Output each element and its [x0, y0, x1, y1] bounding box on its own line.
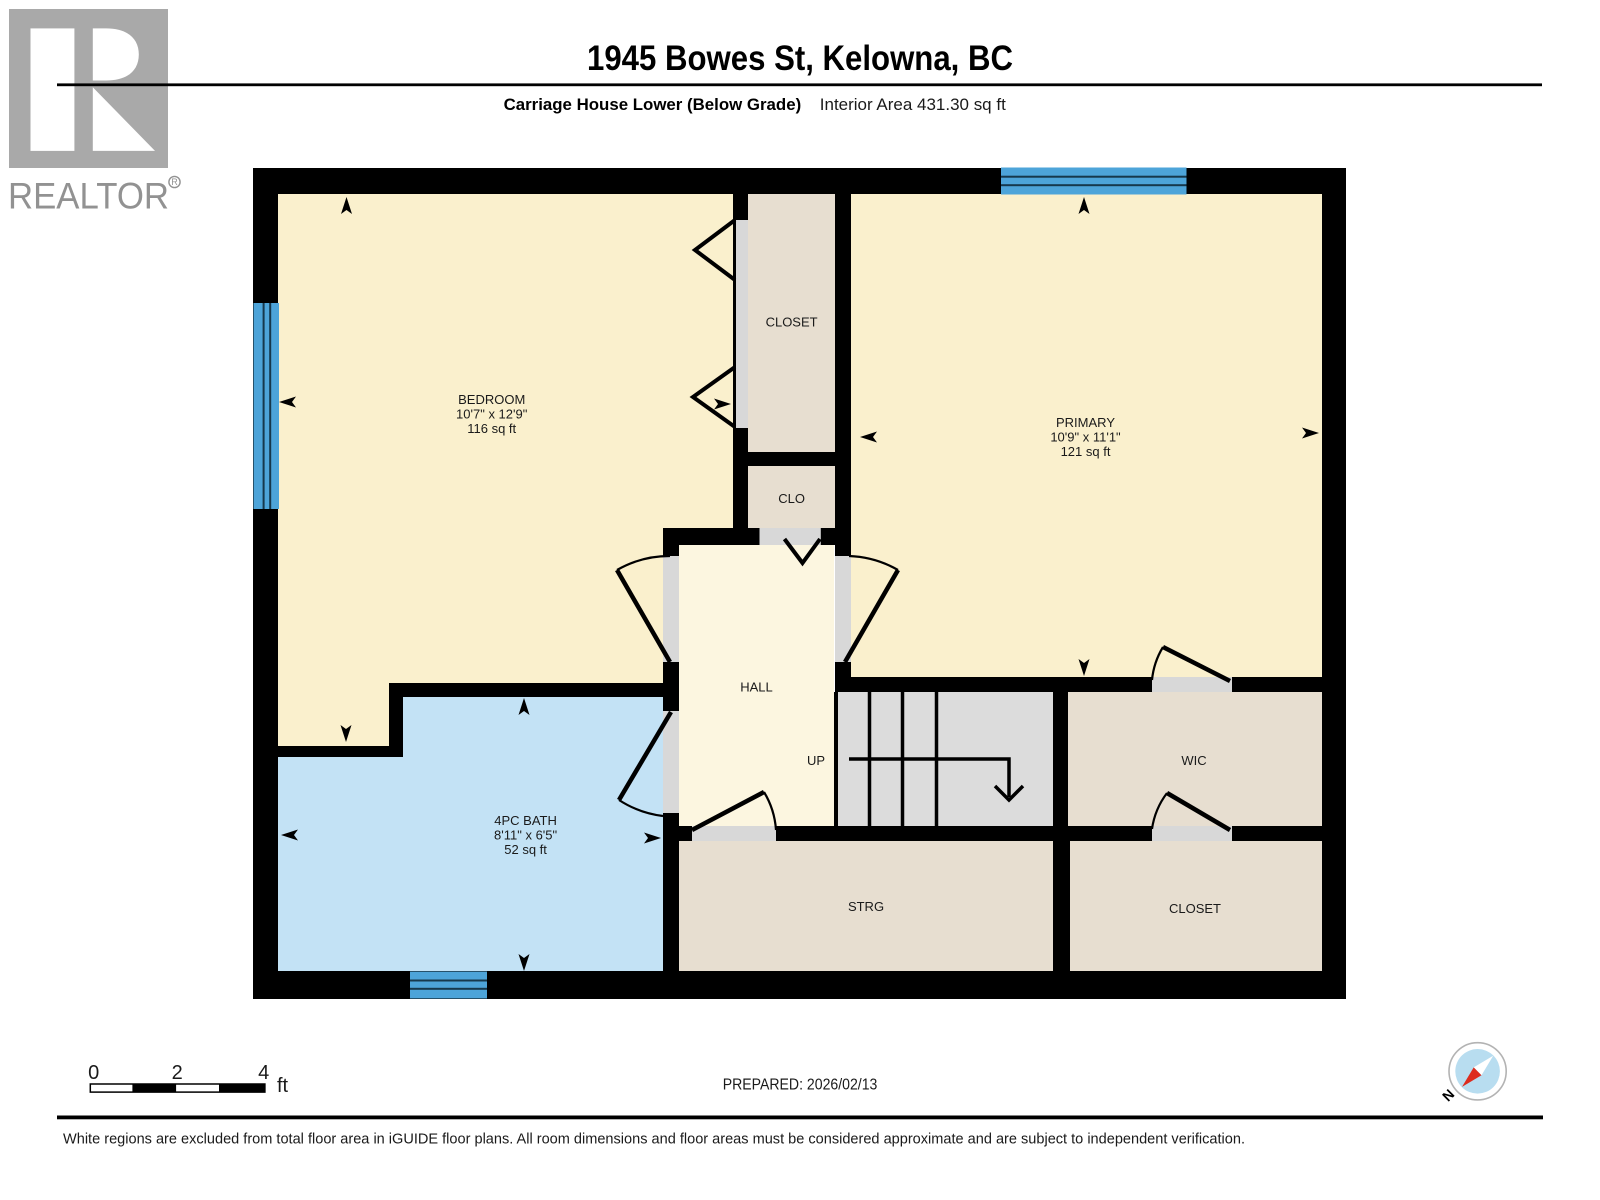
- svg-text:52 sq ft: 52 sq ft: [504, 842, 547, 857]
- svg-text:PRIMARY: PRIMARY: [1056, 415, 1115, 430]
- svg-text:REALTOR: REALTOR: [8, 176, 169, 217]
- svg-text:CLO: CLO: [778, 491, 805, 506]
- svg-text:116 sq ft: 116 sq ft: [467, 421, 516, 436]
- svg-text:WIC: WIC: [1181, 753, 1206, 768]
- svg-text:BEDROOM: BEDROOM: [458, 392, 525, 407]
- svg-text:4: 4: [258, 1062, 269, 1084]
- svg-text:1945 Bowes St, Kelowna, BC: 1945 Bowes St, Kelowna, BC: [587, 39, 1013, 78]
- svg-text:STRG: STRG: [848, 899, 884, 914]
- svg-text:HALL: HALL: [740, 680, 773, 695]
- svg-text:2: 2: [172, 1062, 183, 1084]
- svg-text:10'7" x 12'9": 10'7" x 12'9": [456, 407, 528, 422]
- svg-text:CLOSET: CLOSET: [1169, 901, 1221, 916]
- svg-text:Carriage House Lower (Below Gr: Carriage House Lower (Below Grade): [504, 96, 802, 114]
- svg-text:Interior Area 431.30 sq ft: Interior Area 431.30 sq ft: [820, 96, 1006, 114]
- svg-text:0: 0: [88, 1062, 99, 1084]
- svg-text:PREPARED: 2026/02/13: PREPARED: 2026/02/13: [723, 1077, 878, 1094]
- svg-text:8'11" x 6'5": 8'11" x 6'5": [494, 828, 557, 843]
- svg-text:ft: ft: [277, 1075, 289, 1097]
- svg-text:10'9" x 11'1": 10'9" x 11'1": [1050, 430, 1121, 445]
- svg-text:White regions are excluded fro: White regions are excluded from total fl…: [63, 1131, 1245, 1148]
- svg-text:4PC BATH: 4PC BATH: [494, 813, 557, 828]
- svg-text:UP: UP: [807, 753, 825, 768]
- svg-text:CLOSET: CLOSET: [766, 315, 818, 330]
- svg-text:121 sq ft: 121 sq ft: [1061, 444, 1111, 459]
- svg-text:R: R: [171, 177, 178, 187]
